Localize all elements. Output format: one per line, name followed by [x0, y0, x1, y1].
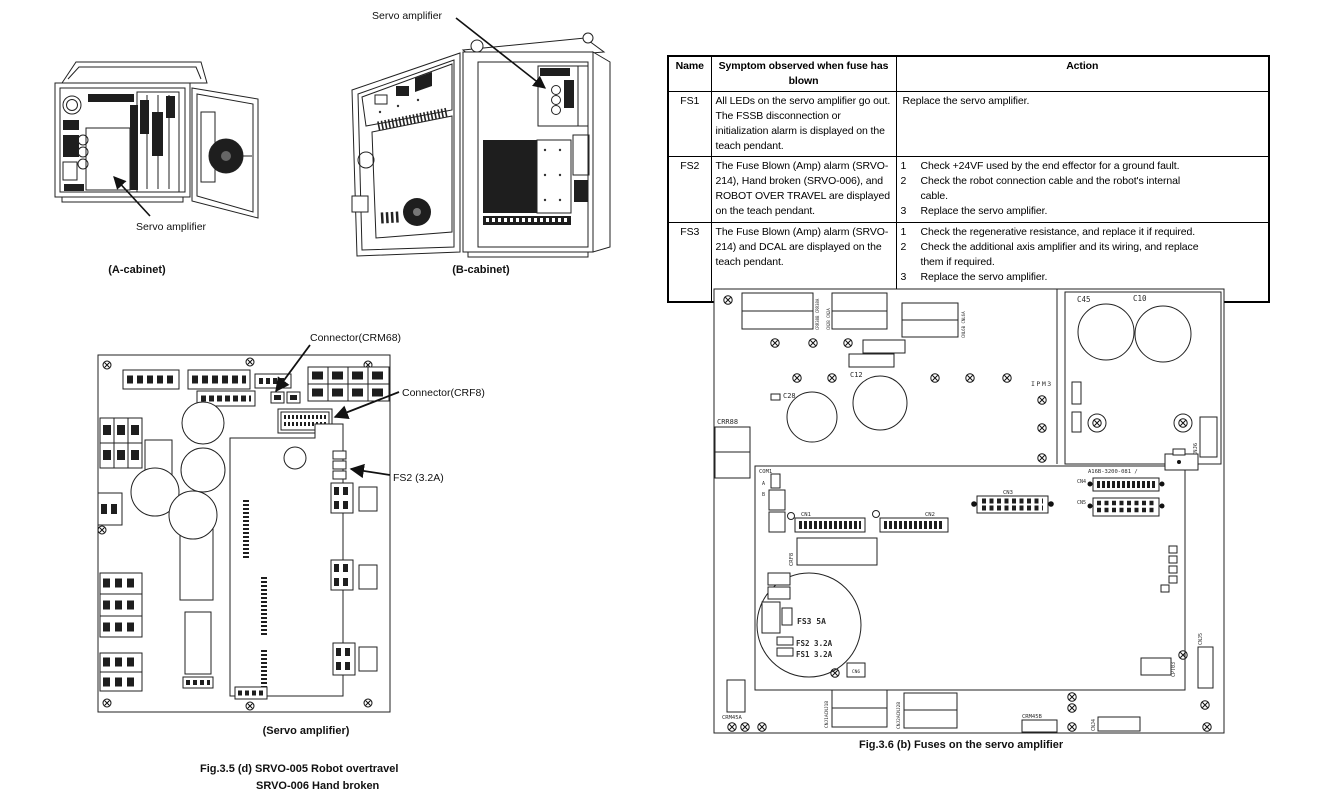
fs2-fuse	[333, 451, 346, 479]
label-com1-b: B	[762, 492, 765, 498]
callout-connector-crm68: Connector(CRM68)	[310, 332, 401, 344]
table-row-fs2: FS2 The Fuse Blown (Amp) alarm (SRVO-214…	[668, 157, 1269, 223]
fuse-symptom-table: Name Symptom observed when fuse has blow…	[667, 55, 1270, 303]
label-cn4: CN4	[1077, 479, 1086, 485]
col-header-action: Action	[896, 56, 1269, 92]
label-crf8: CRF8	[789, 553, 795, 566]
label-cn1: CN1	[801, 512, 811, 518]
label-fs3: FS3 5A	[797, 617, 826, 626]
label-cn3: CN3	[1003, 490, 1013, 496]
table-header-row: Name Symptom observed when fuse has blow…	[668, 56, 1269, 92]
label-fs2: FS2 3.2A	[796, 639, 833, 648]
label-fs1: FS1 3.2A	[796, 650, 833, 659]
table-row-fs1: FS1 All LEDs on the servo amplifier go o…	[668, 92, 1269, 157]
a-cabinet-caption: (A-cabinet)	[108, 264, 166, 276]
col-header-symptom: Symptom observed when fuse has blown	[711, 56, 896, 92]
fig36-caption: Fig.3.6 (b) Fuses on the servo amplifier	[859, 739, 1063, 751]
fuse-action: Replace the servo amplifier.	[896, 92, 1269, 157]
label-c28: C28	[783, 392, 796, 400]
label-com1: COM1	[759, 469, 772, 475]
label-cnj1: CNJ1ACNJ1B	[824, 701, 830, 728]
label-part-number: A16B-3200-081 /	[1088, 469, 1138, 475]
label-cnj2: CNJ2ACNJ2B	[896, 702, 902, 729]
label-crr38: CRR38B CRR38A	[815, 298, 820, 330]
label-cn2ab: CN2B CN2A	[826, 308, 831, 330]
col-header-name: Name	[668, 56, 711, 92]
cabinets-figure: Servo amplifier (A-cabinet)	[0, 0, 660, 300]
fig35-caption-line1: Fig.3.5 (d) SRVO-005 Robot overtravel	[200, 763, 398, 775]
label-c10: C10	[1133, 294, 1147, 303]
b-cabinet-drawing: Servo amplifier (B-cabinet)	[352, 10, 610, 276]
servo-amplifier-board-figure: Connector(CRM68) Connector(CRF8) FS2 (3.…	[85, 325, 505, 725]
label-cnj5: CNJ5	[1198, 633, 1204, 645]
fuse-name: FS1	[668, 92, 711, 157]
label-com1-a: A	[762, 481, 765, 487]
a-cabinet-drawing: Servo amplifier (A-cabinet)	[55, 62, 258, 276]
fuse-symptom: All LEDs on the servo amplifier go out. …	[711, 92, 896, 157]
fuse-board-figure: CRR38B CRR38A CN2B CN2A CNL6B CNL6A C12 …	[713, 288, 1225, 736]
b-cabinet-caption: (B-cabinet)	[452, 264, 510, 276]
label-cn5: CN5	[1077, 500, 1086, 506]
label-ipm3: IPM3	[1031, 380, 1053, 388]
callout-fs2: FS2 (3.2A)	[393, 472, 444, 484]
label-c45: C45	[1077, 295, 1091, 304]
label-cn6: CN6	[852, 669, 860, 675]
fuse-symptom: The Fuse Blown (Amp) alarm (SRVO-214), H…	[711, 157, 896, 223]
fuse-name: FS2	[668, 157, 711, 223]
label-crm45a: CRM45A	[722, 715, 743, 721]
callout-connector-crf8: Connector(CRF8)	[402, 387, 485, 399]
servo-amplifier-label-b: Servo amplifier	[372, 10, 443, 22]
label-cn2: CN2	[925, 512, 935, 518]
servo-amplifier-caption: (Servo amplifier)	[221, 725, 391, 737]
label-cnl6: CNL6B CNL6A	[961, 311, 966, 338]
label-crm45b: CRM45B	[1022, 714, 1043, 720]
label-c12: C12	[850, 371, 863, 379]
label-cnj4: CNJ4	[1091, 719, 1097, 731]
fuse-action: 1Check +24VF used by the end effector fo…	[896, 157, 1269, 223]
fig35-caption-line2: SRVO-006 Hand broken	[256, 780, 379, 792]
label-cpt03: CPT03	[1171, 662, 1177, 677]
servo-amplifier-label-a: Servo amplifier	[136, 221, 207, 233]
fuse-name: FS3	[668, 223, 711, 303]
label-crr88: CRR88	[717, 418, 738, 426]
